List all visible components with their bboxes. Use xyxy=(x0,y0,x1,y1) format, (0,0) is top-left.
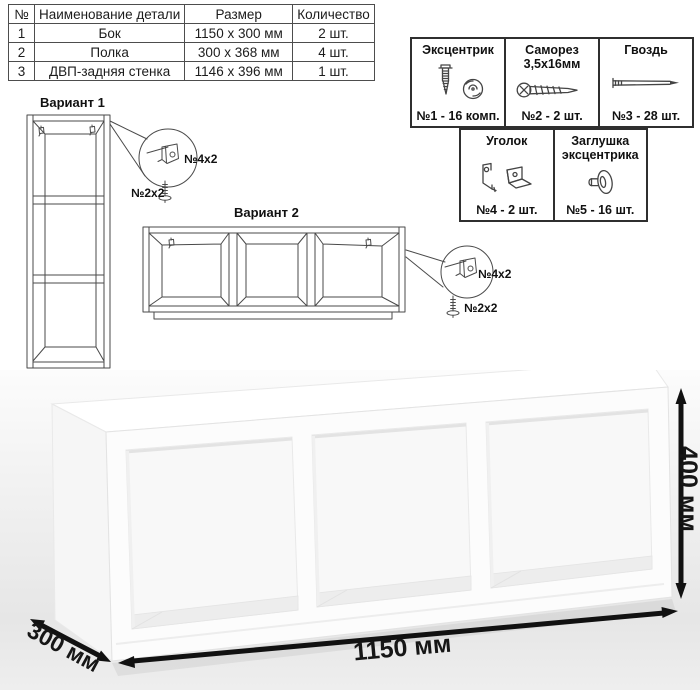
variant2-label: Вариант 2 xyxy=(234,205,299,220)
screw-detail-icon xyxy=(447,296,459,318)
variant2-drawing: Вариант 2 №4х2 №2х2 xyxy=(143,205,512,319)
bracket-detail-icon xyxy=(147,144,179,164)
shelf-compartment xyxy=(126,437,298,629)
variant1-label: Вариант 1 xyxy=(40,95,105,110)
variant1-bracket-callout: №4х2 xyxy=(184,152,218,166)
height-dimension-label: 400 мм xyxy=(674,446,700,532)
variant1-drawing: Вариант 1 №4х2 №2х2 xyxy=(27,95,218,368)
bracket-detail-icon xyxy=(445,258,477,278)
shelf-compartment xyxy=(312,423,471,607)
variant1-screw-callout: №2х2 xyxy=(131,186,165,200)
variant2-screw-callout: №2х2 xyxy=(464,301,498,315)
shelf-compartment xyxy=(486,409,652,588)
assembly-instruction-sheet: № Наименование детали Размер Количество … xyxy=(0,0,700,690)
shelf-left-face xyxy=(52,404,112,661)
variant2-bracket-callout: №4х2 xyxy=(478,267,512,281)
product-photo: 1150 мм 300 мм 400 мм xyxy=(0,370,700,690)
assembly-variants-drawing: Вариант 1 №4х2 №2х2 Вариант 2 xyxy=(0,0,700,370)
